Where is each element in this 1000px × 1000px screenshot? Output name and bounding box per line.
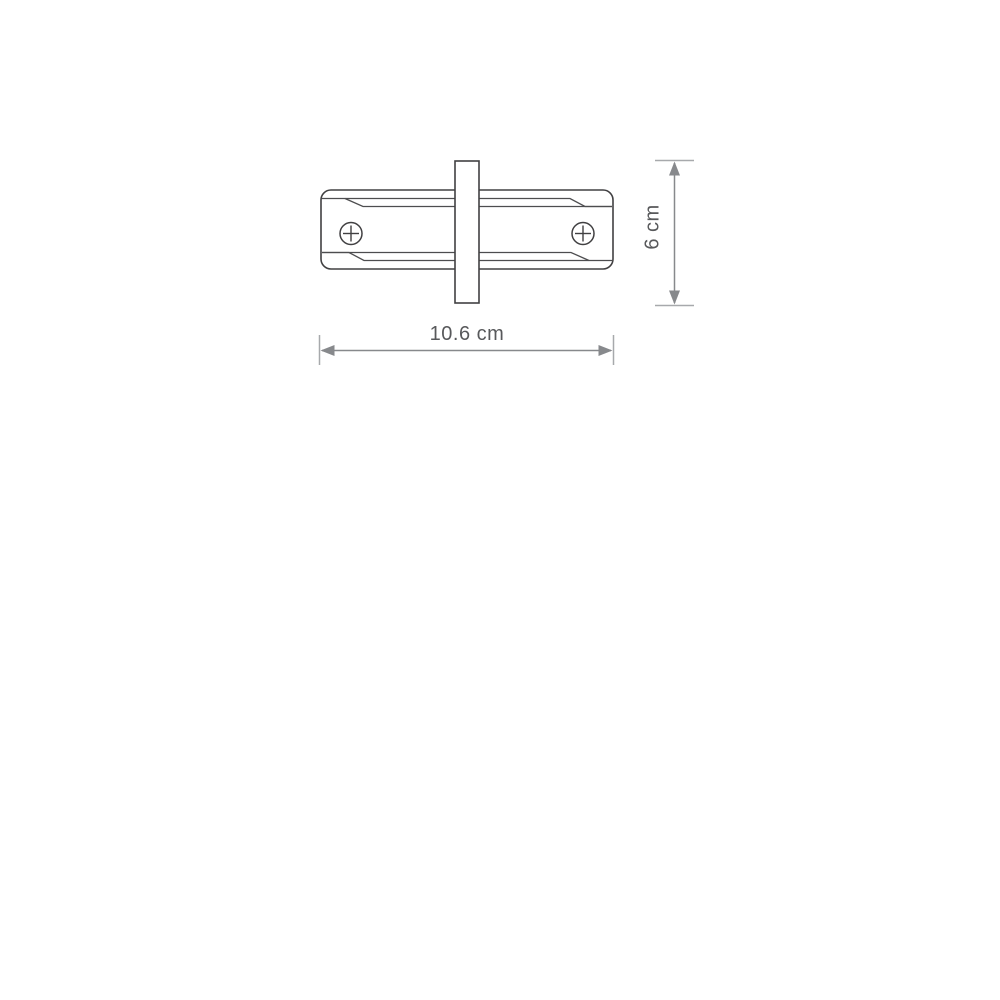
- height-dimension: 6 cm: [641, 161, 694, 306]
- connector-diagram: 6 cm 10.6 cm: [0, 0, 1000, 1000]
- phillips-screw-icon-left: [340, 223, 362, 245]
- width-dimension-label: 10.6 cm: [430, 323, 505, 345]
- canvas: 6 cm 10.6 cm: [0, 0, 1000, 1000]
- arrow-left-icon: [321, 345, 335, 356]
- phillips-screw-icon-right: [572, 223, 594, 245]
- arrow-down-icon: [669, 291, 680, 305]
- arrow-up-icon: [669, 162, 680, 176]
- width-dimension: 10.6 cm: [320, 323, 614, 365]
- center-strip: [455, 161, 479, 303]
- arrow-right-icon: [599, 345, 613, 356]
- height-dimension-label: 6 cm: [641, 204, 663, 249]
